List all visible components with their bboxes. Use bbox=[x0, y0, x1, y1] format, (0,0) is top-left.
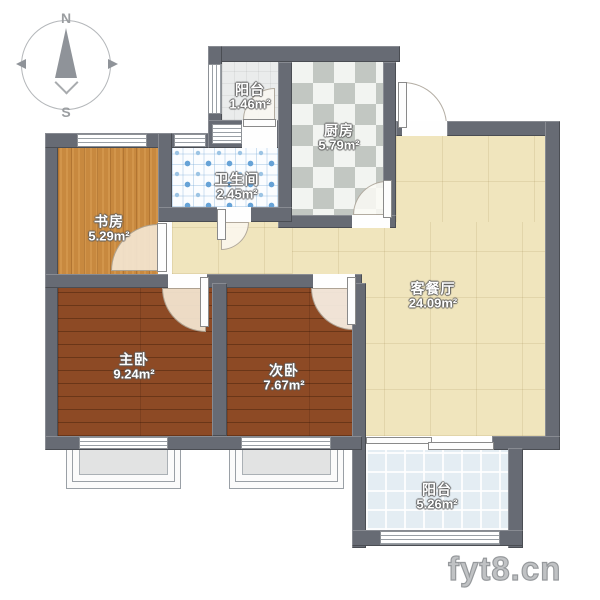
living-floor-upper bbox=[396, 136, 545, 228]
wall-left bbox=[45, 133, 58, 450]
room-label-balcony-top: 阳台1.46m² bbox=[229, 81, 270, 112]
room-label-living-dining: 客餐厅24.09m² bbox=[409, 280, 457, 311]
room-label-bathroom: 卫生间2.45m² bbox=[215, 171, 260, 202]
watermark: fyt8.cn bbox=[448, 550, 588, 588]
room-label-balcony-bottom: 阳台5.26m² bbox=[416, 481, 457, 512]
balcony-top-door-leaf bbox=[243, 119, 276, 127]
balcony-bottom-window bbox=[380, 531, 500, 545]
compass-north-label: N bbox=[61, 10, 71, 26]
room-label-master-bedroom: 主卧9.24m² bbox=[113, 351, 154, 382]
wall-bedroom-divider bbox=[212, 283, 227, 436]
room-label-second-bedroom: 次卧7.67m² bbox=[263, 362, 304, 393]
master-window bbox=[79, 437, 168, 449]
second-bay-window-glass bbox=[242, 449, 331, 475]
bathroom-window bbox=[174, 134, 206, 147]
entry-door-arc bbox=[403, 82, 447, 126]
bathroom-door-leaf bbox=[217, 209, 226, 240]
compass-west-arrow-icon bbox=[16, 59, 26, 69]
balcony-sliding-door-panel-1 bbox=[366, 437, 432, 444]
balcony-sliding-door-panel-2 bbox=[428, 442, 494, 450]
entry-door-opening bbox=[402, 121, 447, 136]
room-label-kitchen: 厨房5.79m² bbox=[318, 122, 359, 153]
master-bay-window-glass bbox=[79, 449, 168, 475]
wall-living-bottom-right bbox=[492, 436, 560, 450]
study-door-leaf bbox=[157, 223, 167, 272]
compass-east-arrow-icon bbox=[108, 59, 118, 69]
wall-top bbox=[208, 46, 400, 62]
compass-icon: N S bbox=[12, 6, 122, 124]
room-label-study: 书房5.29m² bbox=[88, 213, 129, 244]
entry-door-leaf bbox=[398, 82, 407, 128]
balcony-top-window bbox=[208, 64, 222, 114]
study-window bbox=[77, 134, 147, 147]
master-door-leaf bbox=[200, 277, 209, 327]
wall-entry-top bbox=[447, 121, 560, 136]
wall-balcony-kitchen bbox=[278, 62, 292, 228]
balcony-band-window bbox=[212, 124, 242, 144]
floor-plan: 阳台1.46m² 厨房5.79m² 卫生间2.45m² 书房5.29m² 客餐厅… bbox=[0, 0, 600, 600]
kitchen-door-leaf bbox=[383, 180, 392, 218]
wall-right bbox=[545, 121, 560, 450]
compass-south-label: S bbox=[61, 104, 70, 120]
second-door-leaf bbox=[347, 277, 356, 325]
second-window bbox=[241, 437, 331, 449]
